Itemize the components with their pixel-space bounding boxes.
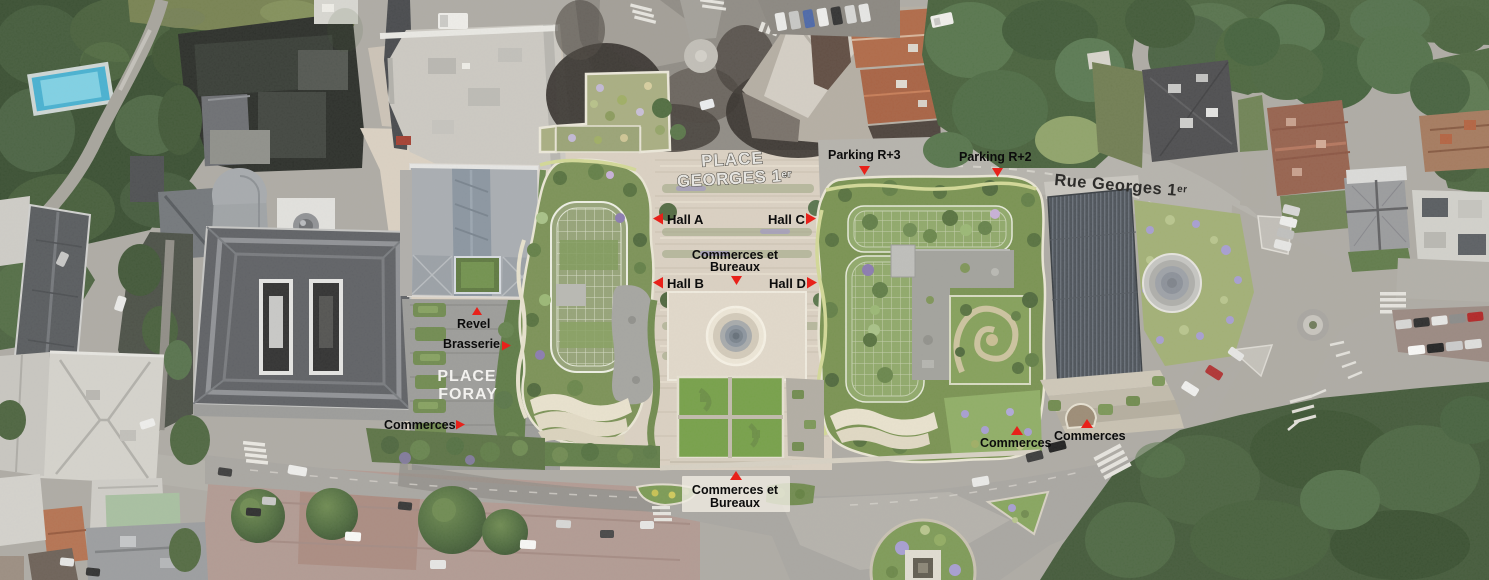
svg-text:Hall D: Hall D: [769, 276, 806, 291]
svg-text:Commerces: Commerces: [1054, 429, 1126, 443]
svg-text:Hall C: Hall C: [768, 212, 805, 227]
svg-text:Commerces: Commerces: [384, 418, 456, 432]
svg-text:Brasserie: Brasserie: [443, 337, 500, 351]
svg-text:Parking R+3: Parking R+3: [828, 148, 901, 162]
svg-text:Commerces: Commerces: [980, 436, 1052, 450]
svg-text:Bureaux: Bureaux: [710, 260, 760, 274]
svg-text:Revel: Revel: [457, 317, 490, 331]
svg-text:Bureaux: Bureaux: [710, 496, 760, 510]
svg-text:Commerces et: Commerces et: [692, 483, 779, 497]
svg-text:Hall A: Hall A: [667, 212, 704, 227]
svg-text:Parking R+2: Parking R+2: [959, 150, 1032, 164]
svg-text:FORAY: FORAY: [438, 386, 498, 403]
svg-text:Hall B: Hall B: [667, 276, 704, 291]
svg-text:PLACE: PLACE: [437, 368, 496, 385]
